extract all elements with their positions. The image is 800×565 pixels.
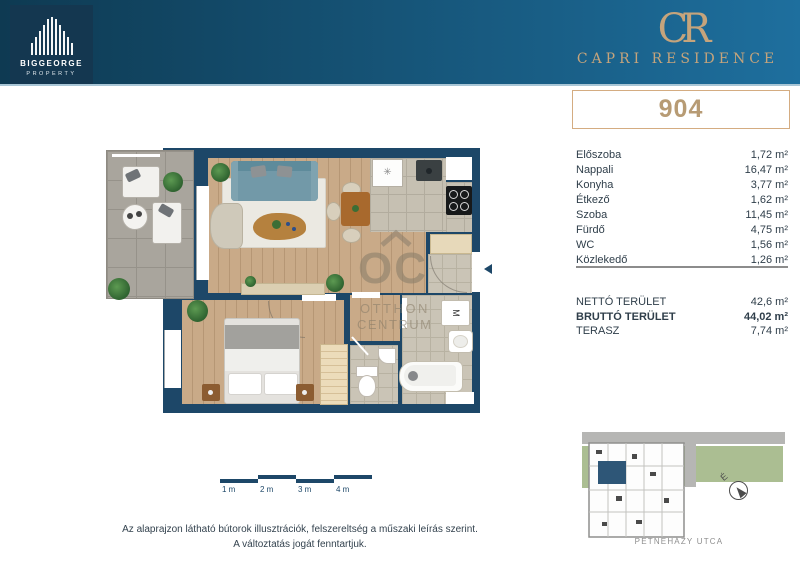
armchair: [210, 203, 243, 249]
project-name: CAPRI RESIDENCE: [565, 51, 790, 67]
pillow: [264, 373, 298, 395]
site-driveway: [685, 432, 696, 487]
nightstand: [202, 384, 220, 401]
room-area: 4,75 m²: [751, 224, 788, 236]
shaft: [446, 157, 472, 180]
room-row: Előszoba1,72 m²: [576, 147, 788, 162]
room-area: 1,72 m²: [751, 149, 788, 161]
terrace-table: [122, 204, 148, 230]
kitchen-sink: [416, 160, 442, 181]
room-list: Előszoba1,72 m² Nappali16,47 m² Konyha3,…: [576, 147, 788, 268]
plant: [211, 163, 230, 182]
entry-closet: [430, 234, 472, 254]
room-label: Fürdő: [576, 224, 605, 236]
total-row-gross: BRUTTÓ TERÜLET44,02 m²: [576, 310, 788, 325]
watermark-line2: CENTRUM: [357, 317, 431, 332]
entrance-door-gap: [472, 252, 480, 292]
nightstand: [296, 384, 314, 401]
panel-divider: [576, 266, 788, 268]
plant: [245, 276, 256, 287]
disclaimer-line1: Az alaprajzon látható bútorok illusztrác…: [60, 522, 540, 537]
pillow: [228, 373, 262, 395]
total-label: NETTÓ TERÜLET: [576, 296, 666, 308]
plant: [108, 278, 130, 300]
dining-table: [341, 192, 370, 226]
plant: [187, 300, 208, 322]
disclaimer: Az alaprajzon látható bútorok illusztrác…: [60, 522, 540, 552]
cooktop: [446, 186, 472, 215]
total-value: 44,02 m²: [744, 311, 788, 323]
building-icon: [31, 17, 73, 55]
room-label: Konyha: [576, 179, 613, 191]
total-label: TERASZ: [576, 325, 619, 337]
room-row: Fürdő4,75 m²: [576, 222, 788, 237]
scale-label: 3 m: [298, 485, 311, 494]
coffee-table: [253, 213, 306, 240]
disclaimer-line2: A változtatás jogát fenntartjuk.: [60, 537, 540, 552]
room-label: Nappali: [576, 164, 613, 176]
developer-logo: BIGGEORGE PROPERTY: [10, 5, 93, 84]
unit-number-badge: 904: [572, 90, 790, 129]
bathtub: [399, 361, 463, 392]
terrace-door: [196, 186, 209, 280]
room-label: Előszoba: [576, 149, 621, 161]
room-row: Konyha3,77 m²: [576, 177, 788, 192]
street-label: PETNEHÁZY UTCA: [594, 537, 764, 546]
room-area: 11,45 m²: [745, 209, 788, 221]
room-area: 1,26 m²: [751, 254, 788, 266]
scale-segment: [258, 475, 296, 479]
developer-division: PROPERTY: [10, 71, 93, 77]
scale-segment: [334, 475, 372, 479]
toilet: [358, 375, 376, 397]
site-green-area: [696, 446, 783, 482]
watermark-line1: OTTHON: [360, 301, 428, 316]
room-label: WC: [576, 239, 594, 251]
total-value: 42,6 m²: [751, 296, 788, 308]
bedroom-window: [164, 330, 181, 388]
wc-sink: [378, 348, 396, 364]
room-row: WC1,56 m²: [576, 238, 788, 253]
washing-machine: M: [441, 300, 470, 326]
room-row: Nappali16,47 m²: [576, 162, 788, 177]
floorplan-sheet: BIGGEORGE PROPERTY CR CAPRI RESIDENCE 90…: [0, 0, 800, 565]
total-label: BRUTTÓ TERÜLET: [576, 311, 676, 323]
plant: [163, 172, 183, 192]
scale-segment: [220, 479, 258, 483]
scale-label: 2 m: [260, 485, 273, 494]
room-label: Étkező: [576, 194, 610, 206]
scale-segment: [296, 479, 334, 483]
entrance-arrow-icon: [484, 264, 492, 274]
terrace-lounger: [122, 166, 160, 198]
fridge-freezer: ✳: [372, 159, 403, 187]
room-row: Étkező1,62 m²: [576, 192, 788, 207]
bathroom-niche: [446, 392, 474, 404]
sofa: [231, 161, 318, 201]
totals-list: NETTÓ TERÜLET42,6 m² BRUTTÓ TERÜLET44,02…: [576, 295, 788, 339]
project-logo: CR CAPRI RESIDENCE: [565, 7, 790, 67]
room-label: Közlekedő: [576, 254, 627, 266]
wardrobe: [320, 344, 348, 405]
room-area: 1,62 m²: [751, 194, 788, 206]
dining-chair: [342, 228, 361, 243]
room-area: 1,56 m²: [751, 239, 788, 251]
room-row: Szoba11,45 m²: [576, 207, 788, 222]
dining-chair: [326, 202, 341, 221]
watermark-monogram: OC: [358, 243, 422, 295]
site-highlighted-unit: [598, 461, 626, 484]
developer-name: BIGGEORGE: [10, 59, 93, 68]
room-area: 16,47 m²: [745, 164, 788, 176]
total-row: NETTÓ TERÜLET42,6 m²: [576, 295, 788, 310]
total-row: TERASZ7,74 m²: [576, 324, 788, 339]
project-monogram: CR: [565, 7, 790, 51]
site-building-plan: [588, 442, 685, 538]
scale-label: 4 m: [336, 485, 349, 494]
washing-machine-label: M: [444, 309, 468, 317]
freezer-symbol: ✳: [383, 167, 391, 178]
scale-label: 1 m: [222, 485, 235, 494]
bed: [224, 318, 300, 404]
plant: [326, 274, 344, 292]
room-area: 3,77 m²: [751, 179, 788, 191]
terrace-lounger: [152, 202, 182, 244]
bathroom-sink: [448, 330, 473, 353]
bedroom-door-gap: [302, 294, 336, 301]
terrace-railing: [112, 154, 160, 157]
total-value: 7,74 m²: [751, 325, 788, 337]
room-label: Szoba: [576, 209, 607, 221]
